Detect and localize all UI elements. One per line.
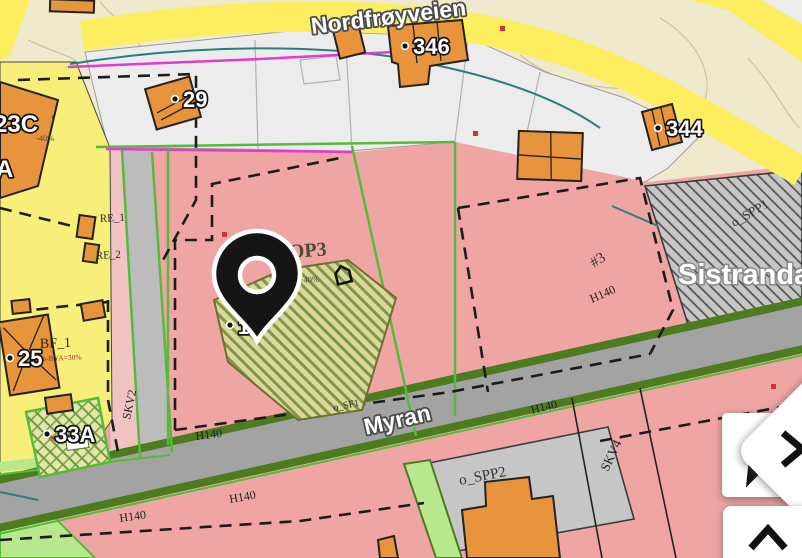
zone-label-re1: RE_1 (100, 212, 126, 225)
zone-label-re2: RE_2 (96, 249, 122, 262)
zone-label-bya30: %-BYA=30% (40, 353, 82, 363)
chevron-right-icon[interactable] (776, 426, 802, 472)
building-label-a: A (0, 156, 13, 183)
building-label-344: 344 (666, 116, 703, 141)
zone-label-one: 1 (50, 115, 55, 125)
chevron-up-button[interactable] (723, 506, 802, 558)
building-label-23c: 23C (0, 111, 38, 138)
chevron-up-icon (746, 522, 790, 552)
map-canvas[interactable]: Nordfrøyveien Myran Sistranda BOP3 %-BYA… (0, 0, 802, 558)
building-label-29: 29 (183, 87, 207, 112)
place-label-sistranda: Sistranda (678, 259, 802, 291)
zoning-map[interactable]: Nordfrøyveien Myran Sistranda BOP3 %-BYA… (0, 0, 802, 558)
building-label-25: 25 (18, 346, 42, 371)
zone-label-minus40: -40% (36, 133, 54, 143)
zone-label-bf1: BF_1 (40, 336, 72, 352)
building-label-346: 346 (413, 34, 450, 59)
building-label-33a: 33A (55, 422, 95, 447)
